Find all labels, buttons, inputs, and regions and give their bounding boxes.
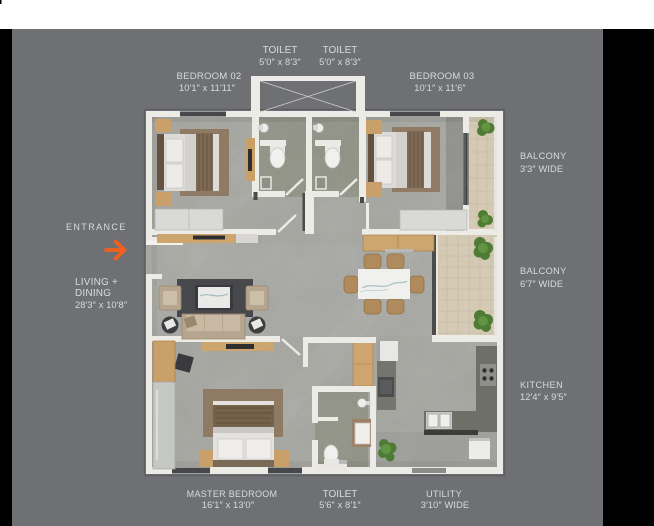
svg-text:3′10″ WIDE: 3′10″ WIDE bbox=[421, 500, 469, 510]
svg-text:5′0″ x 8′3″: 5′0″ x 8′3″ bbox=[259, 57, 301, 67]
svg-text:16′1″ x 13′0″: 16′1″ x 13′0″ bbox=[202, 500, 255, 510]
svg-text:BALCONY: BALCONY bbox=[520, 266, 567, 276]
svg-text:3′3″ WIDE: 3′3″ WIDE bbox=[520, 164, 563, 174]
svg-text:ENTRANCE: ENTRANCE bbox=[66, 222, 127, 232]
svg-text:10′1″ x 11′6″: 10′1″ x 11′6″ bbox=[414, 83, 466, 93]
svg-text:12′4″ x 9′5″: 12′4″ x 9′5″ bbox=[520, 392, 568, 402]
svg-text:5′6″ x 8′1″: 5′6″ x 8′1″ bbox=[319, 500, 361, 510]
svg-text:TOILET: TOILET bbox=[323, 45, 358, 56]
svg-text:BALCONY: BALCONY bbox=[520, 151, 567, 161]
svg-text:DINING: DINING bbox=[75, 288, 111, 299]
svg-text:28′3″ x 10′8″: 28′3″ x 10′8″ bbox=[75, 300, 128, 310]
svg-text:BEDROOM 03: BEDROOM 03 bbox=[410, 71, 475, 82]
svg-text:10′1″ x 11′11″: 10′1″ x 11′11″ bbox=[179, 83, 236, 93]
svg-text:TOILET: TOILET bbox=[323, 489, 358, 500]
svg-text:BEDROOM 02: BEDROOM 02 bbox=[177, 71, 242, 82]
svg-text:LIVING +: LIVING + bbox=[75, 277, 118, 288]
svg-text:6′7″ WIDE: 6′7″ WIDE bbox=[520, 279, 563, 289]
svg-text:MASTER BEDROOM: MASTER BEDROOM bbox=[187, 489, 278, 499]
svg-text:KITCHEN: KITCHEN bbox=[520, 380, 563, 390]
svg-text:UTILITY: UTILITY bbox=[426, 489, 462, 499]
svg-text:TOILET: TOILET bbox=[263, 45, 298, 56]
svg-text:5′0″ x 8′3″: 5′0″ x 8′3″ bbox=[319, 57, 361, 67]
